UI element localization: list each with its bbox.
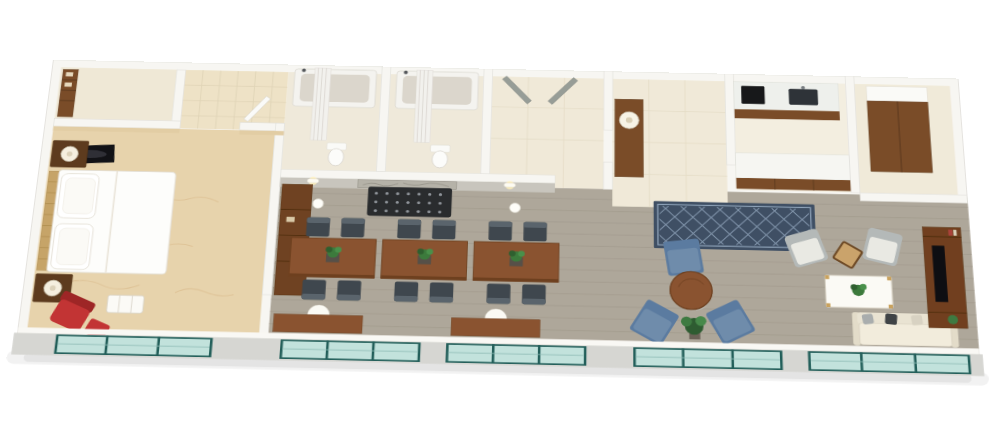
bathtub-interior — [402, 76, 472, 105]
sofa-pillow — [911, 315, 924, 326]
shelf-linens — [64, 83, 72, 87]
meeting-chair — [341, 218, 365, 238]
meeting-chair — [487, 284, 511, 304]
entry-closet — [866, 86, 932, 172]
corridor-floor — [489, 76, 604, 189]
pillow-front — [56, 228, 90, 265]
meeting-chair — [306, 217, 330, 237]
meeting-chair — [523, 222, 547, 242]
window-band-meeting-2 — [445, 343, 586, 366]
kitchen-sink — [789, 89, 819, 106]
wall-corridor-foyer-a — [604, 71, 613, 130]
serving-counter — [736, 153, 851, 180]
sconce-fixture — [307, 179, 319, 183]
foyer-furniture — [615, 99, 644, 177]
meeting-chair — [301, 280, 326, 300]
bathtub-interior — [299, 74, 370, 103]
closet-shelf — [866, 86, 927, 102]
scene-3d — [22, 40, 978, 389]
foyer-console-table — [615, 99, 644, 177]
meeting-chair — [432, 220, 456, 240]
conference-table-2 — [381, 240, 468, 281]
media-wall-unit — [922, 227, 968, 329]
luggage-bench — [106, 295, 144, 313]
chair-seat — [667, 247, 701, 273]
window-band-living-2 — [808, 351, 972, 374]
console-table — [273, 314, 363, 334]
conference-table-3 — [473, 241, 559, 282]
meeting-chair — [397, 219, 421, 239]
sofa-pillow — [861, 313, 874, 324]
floor-plan-svg — [5, 59, 989, 388]
unit-books — [948, 230, 953, 236]
unit-books — [953, 230, 957, 236]
window-band-meeting-1 — [279, 339, 420, 362]
meeting-chair — [337, 280, 362, 300]
console-table — [451, 318, 540, 338]
window-band-bedroom — [54, 334, 213, 357]
coffee-maker — [741, 86, 765, 105]
wall-corridor-foyer-b — [603, 162, 612, 189]
floor-uplight — [312, 199, 323, 209]
meeting-chair — [522, 284, 546, 304]
shelf-linens — [66, 72, 74, 76]
conference-tables — [289, 238, 559, 283]
meeting-chair — [394, 282, 418, 302]
armoire-item — [286, 217, 295, 222]
conference-table-1 — [289, 238, 376, 279]
meeting-chair — [429, 282, 453, 302]
shower-curtain — [414, 70, 433, 143]
floor-plan-canvas — [0, 0, 1000, 436]
sconce-fixture — [504, 183, 516, 187]
coffee-table — [825, 275, 893, 308]
meeting-chair — [488, 221, 512, 241]
toilet-bowl — [432, 151, 448, 168]
floor-uplight — [509, 203, 520, 213]
sofa-pillow-dark — [885, 313, 897, 325]
window-band-living-1 — [633, 347, 783, 370]
plan-3d-transform — [5, 59, 989, 388]
pillow-front — [62, 178, 96, 214]
blue-armchair-top — [663, 238, 704, 276]
